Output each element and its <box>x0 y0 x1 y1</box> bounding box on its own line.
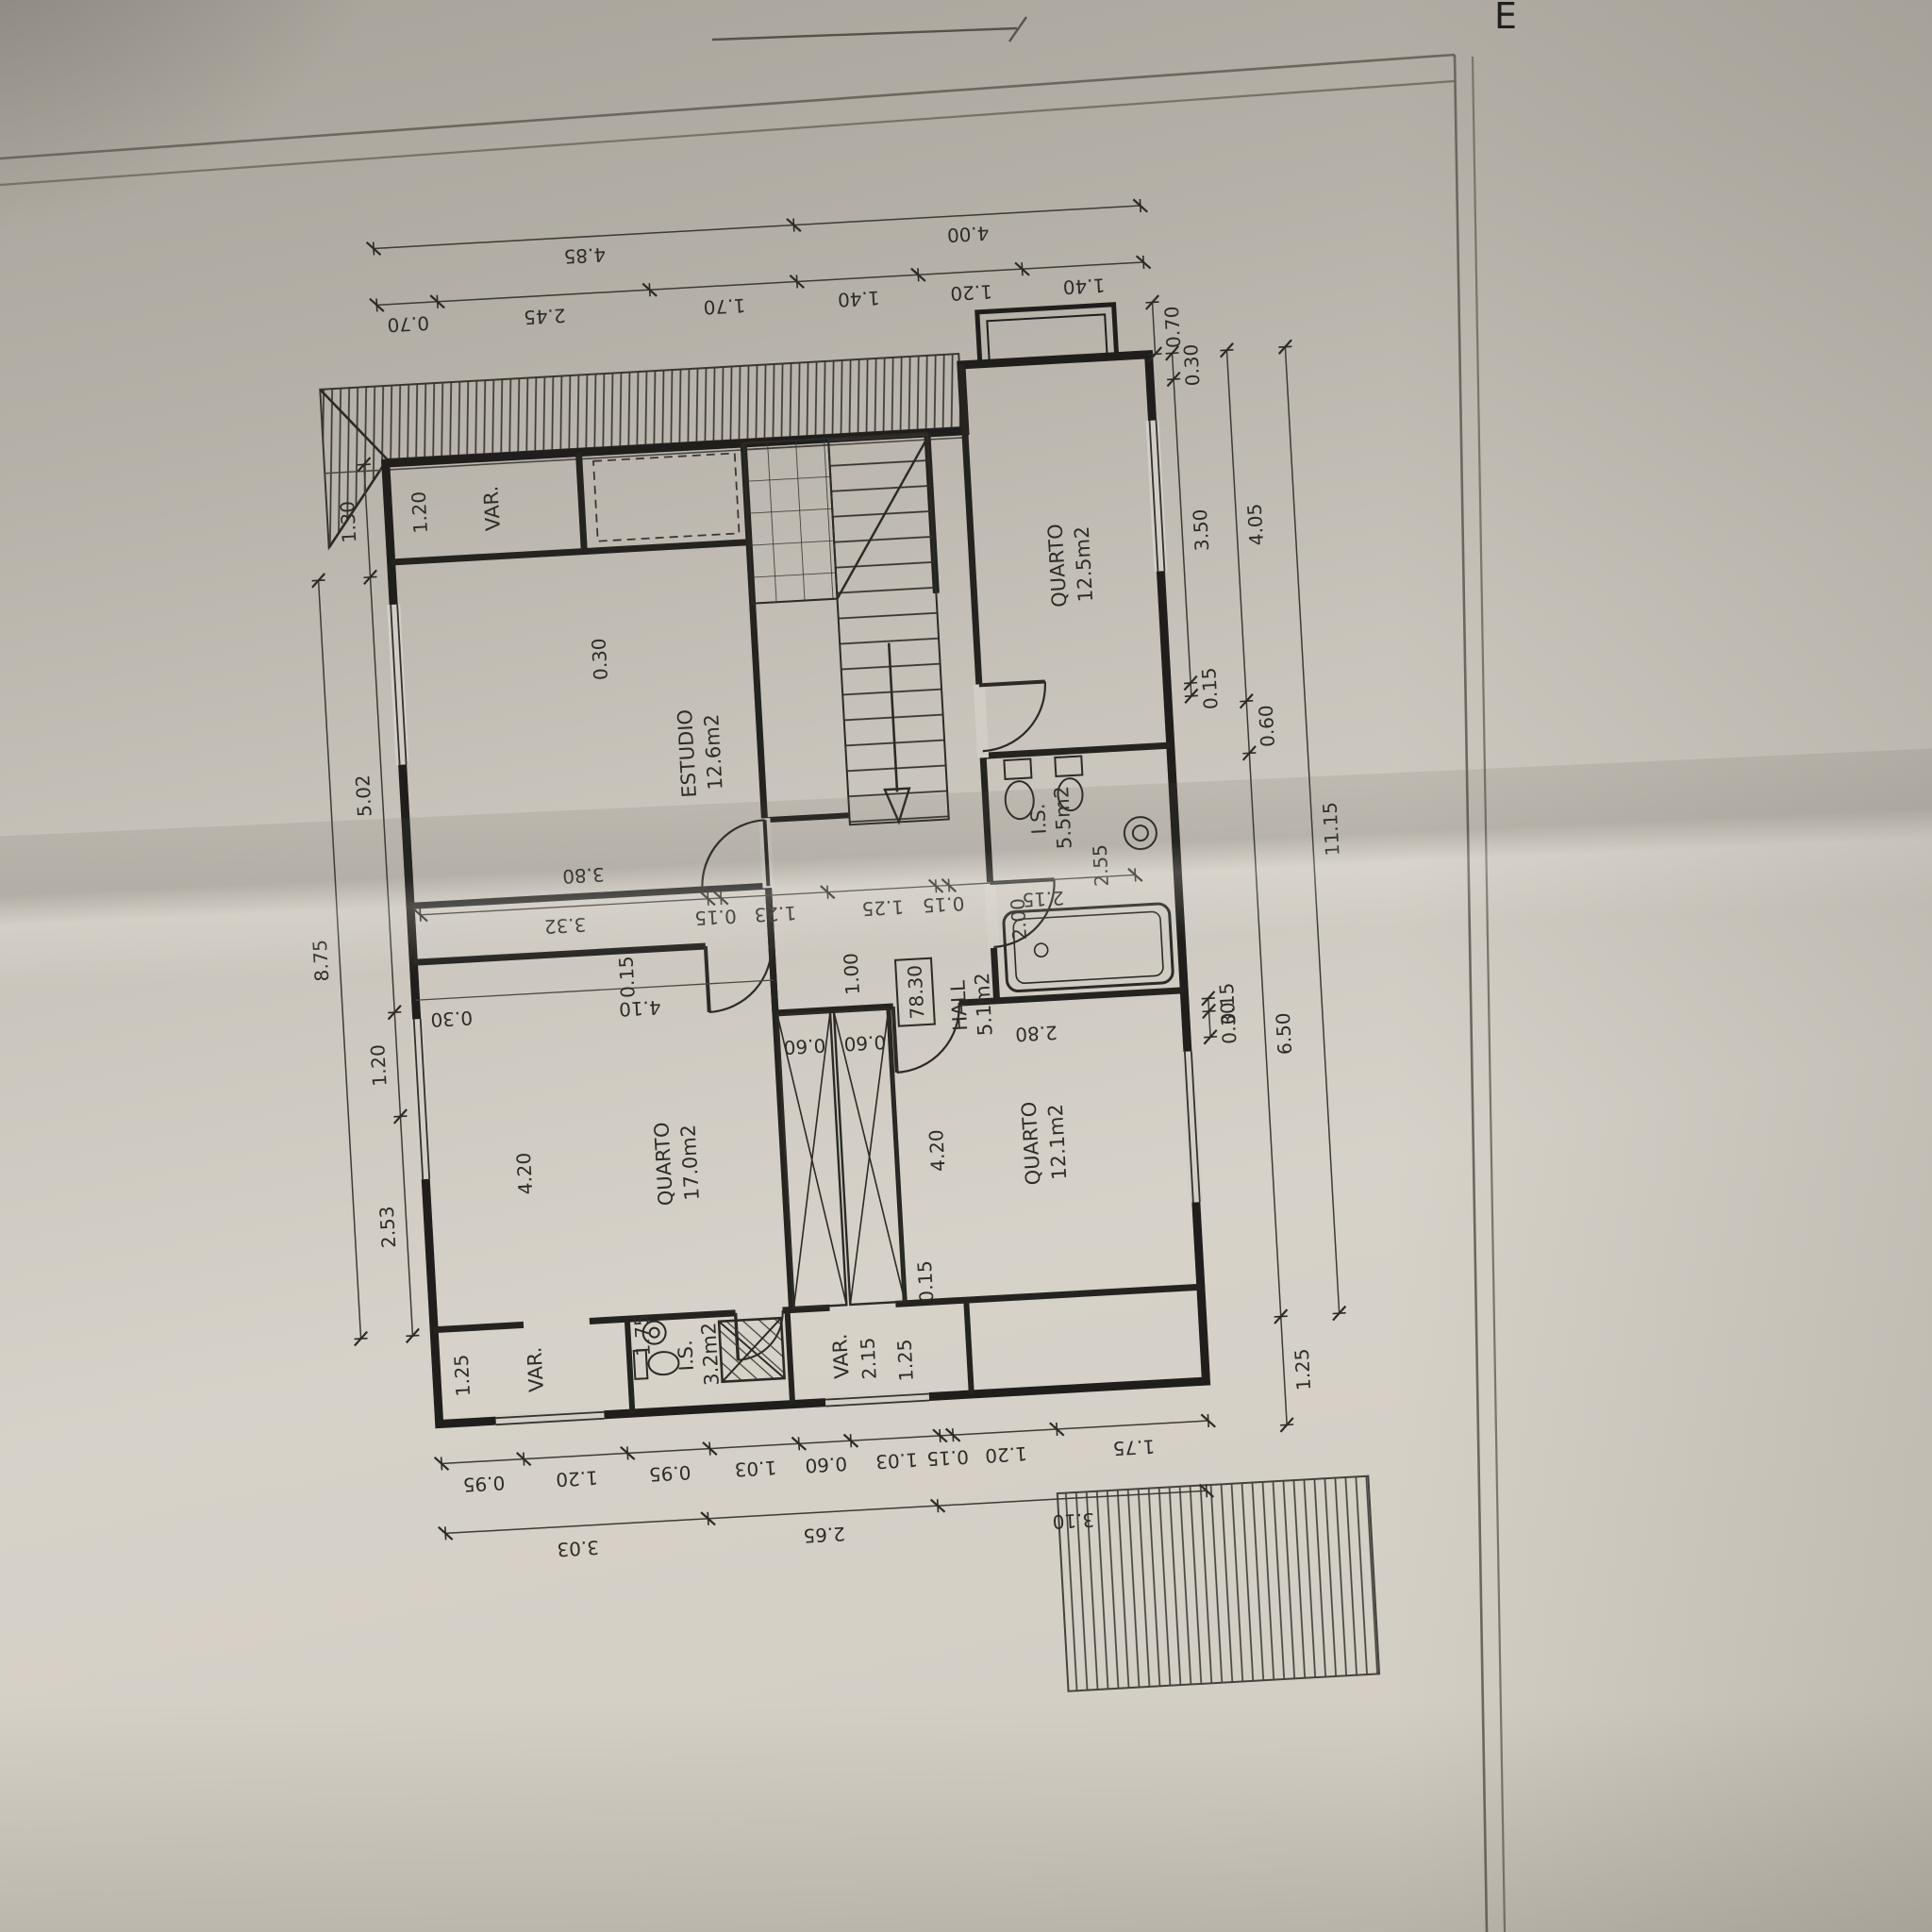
upper-drawing-fragment-line <box>712 28 1017 40</box>
dim-label: 2.45 <box>524 304 567 328</box>
dim-label: 0.15 <box>926 1445 970 1470</box>
room-area-quarto-125: 12.5m2 <box>1071 525 1097 603</box>
sheet-top-edge-line-2 <box>0 81 1455 185</box>
bathroom-55-fixtures <box>994 752 1173 991</box>
dim-label: 1.30 <box>336 500 360 543</box>
dim-label: 2.65 <box>803 1523 846 1547</box>
dim-label: 0.95 <box>648 1461 691 1486</box>
dim-label: 4.85 <box>563 243 607 268</box>
dim-line <box>1208 998 1210 1037</box>
dim-estudio-top: 0.30 <box>587 638 611 681</box>
dim-label: 1.40 <box>1062 274 1106 298</box>
room-area-is-32: 3.2m2 <box>697 1322 724 1386</box>
sheet-right-edge-line-2 <box>1473 57 1505 1932</box>
dim-label: 8.75 <box>308 939 333 982</box>
dim-label: 1.03 <box>875 1448 919 1473</box>
dim-label: 2.53 <box>375 1206 400 1249</box>
dim-label: 1.20 <box>950 280 993 305</box>
void-dashed-outline <box>593 453 740 541</box>
sheet-right-edge-line <box>1455 55 1487 1932</box>
dim-line <box>1153 302 1156 354</box>
dim-label: 1.75 <box>1112 1435 1156 1459</box>
dim-label: 1.25 <box>1291 1348 1315 1391</box>
dim-label: 11.15 <box>1318 802 1343 858</box>
dim-door-width: 1.00 <box>840 952 864 995</box>
dim-wardrobe-a: 0.60 <box>783 1034 826 1058</box>
dim-q17-wall: 0.30 <box>430 1007 474 1031</box>
dim-line <box>376 262 1143 305</box>
window-left-2 <box>410 1019 432 1180</box>
floor-plan: 78.30 VAR. ESTUDIO 12.6m2 QUARTO 12.5m2 … <box>270 190 1390 1731</box>
room-label-is-55: I.S. <box>1026 803 1051 835</box>
room-label-var-top: VAR. <box>479 485 505 531</box>
dim-label: 0.15 <box>694 905 738 929</box>
floor-plan-drawing: E <box>0 0 1932 1932</box>
dim-line <box>374 206 1141 248</box>
window-right-1 <box>1146 420 1168 572</box>
room-label-var-mid: VAR. <box>828 1333 854 1379</box>
dim-label: 0.70 <box>387 311 430 336</box>
room-label-var-left: VAR. <box>523 1346 548 1392</box>
door-estudio <box>699 818 774 891</box>
dim-q17-depth: 4.20 <box>512 1152 537 1195</box>
dim-label: 0.60 <box>805 1452 848 1476</box>
dim-label: 1.23 <box>754 902 797 926</box>
room-area-estudio: 12.6m2 <box>700 713 726 791</box>
room-area-hall: 5.1m2 <box>971 972 997 1036</box>
room-label-estudio: ESTUDIO <box>674 708 701 798</box>
dim-q17-inner-width: 4.10 <box>619 996 662 1021</box>
dim-label: 1.70 <box>703 294 746 319</box>
dim-label: 0.95 <box>462 1472 506 1496</box>
sheet-corner-letter: E <box>1494 0 1517 37</box>
stair-landing-grid <box>743 439 837 604</box>
window-right-2 <box>1181 1051 1203 1203</box>
staircase <box>592 433 948 838</box>
room-area-quarto-121: 12.1m2 <box>1044 1104 1071 1181</box>
dim-estudio-width: 3.80 <box>562 863 606 888</box>
stair-treads <box>828 433 949 824</box>
room-label-quarto-121: QUARTO <box>1018 1101 1045 1186</box>
room-area-is-55: 5.5m2 <box>1050 785 1076 849</box>
dim-label: 0.15 <box>1197 667 1222 710</box>
dim-label: 0.30 <box>1216 1002 1241 1045</box>
dim-wardrobe-wall: 0.15 <box>913 1260 938 1304</box>
dim-var-left-width: 1.25 <box>450 1354 475 1397</box>
dim-label: 1.40 <box>837 287 880 311</box>
dim-label: 0.70 <box>1160 306 1185 349</box>
dim-label: 6.50 <box>1272 1012 1296 1056</box>
dim-label: 4.05 <box>1243 503 1268 546</box>
shower-icon <box>719 1318 784 1382</box>
sheet-top-edge-line <box>0 55 1455 158</box>
dim-var-top-width: 1.20 <box>408 491 432 534</box>
dim-var-mid-a: 2.15 <box>856 1337 880 1380</box>
door-quarto-170 <box>706 942 775 1012</box>
dim-q17-top: 0.15 <box>614 956 639 999</box>
dim-is55-depth: 2.55 <box>1089 844 1113 888</box>
room-label-hall: HALL <box>946 979 972 1031</box>
dim-label: 1.20 <box>985 1442 1028 1467</box>
dim-line <box>364 464 413 1336</box>
washbasin-icon <box>1124 816 1158 850</box>
room-label-quarto-170: QUARTO <box>650 1122 677 1207</box>
dim-is32-width: 1.75 <box>630 1313 655 1357</box>
window-var-left <box>495 1408 605 1427</box>
dim-var-mid-b: 1.25 <box>892 1339 917 1382</box>
dim-label: 0.30 <box>1179 343 1204 387</box>
dim-label: 0.15 <box>922 892 965 917</box>
dim-label: 2.15 <box>1022 887 1065 911</box>
dim-q121-depth: 4.20 <box>924 1129 949 1173</box>
dim-label: 3.10 <box>1052 1508 1095 1533</box>
dim-label: 0.60 <box>1255 705 1279 748</box>
door-quarto-125 <box>974 680 1049 758</box>
room-label-quarto-125: QUARTO <box>1043 524 1071 608</box>
dim-label: 3.03 <box>557 1536 600 1560</box>
exterior-steps-hatch <box>1058 1476 1379 1691</box>
level-marker: 78.30 <box>895 958 935 1026</box>
window-left-1 <box>387 604 408 765</box>
dim-q121-inner-width: 2.80 <box>1015 1021 1058 1045</box>
room-area-quarto-170: 17.0m2 <box>676 1124 703 1201</box>
interior-reference-lines <box>416 980 774 1000</box>
dim-label: 5.02 <box>351 774 375 818</box>
level-value: 78.30 <box>903 964 928 1020</box>
dim-label: 3.32 <box>543 913 587 938</box>
dim-label: 3.50 <box>1189 508 1213 552</box>
dim-label: 1.20 <box>556 1466 599 1491</box>
dim-label: 4.00 <box>946 222 990 246</box>
dim-label: 1.20 <box>366 1044 391 1088</box>
dim-label: 1.25 <box>861 895 905 920</box>
dim-label: 1.03 <box>734 1457 777 1481</box>
room-label-is-32: I.S. <box>674 1340 698 1372</box>
photo-of-floor-plan: E <box>0 0 1932 1932</box>
dim-wardrobe-b: 0.60 <box>843 1030 887 1055</box>
window-var-mid <box>825 1391 930 1409</box>
